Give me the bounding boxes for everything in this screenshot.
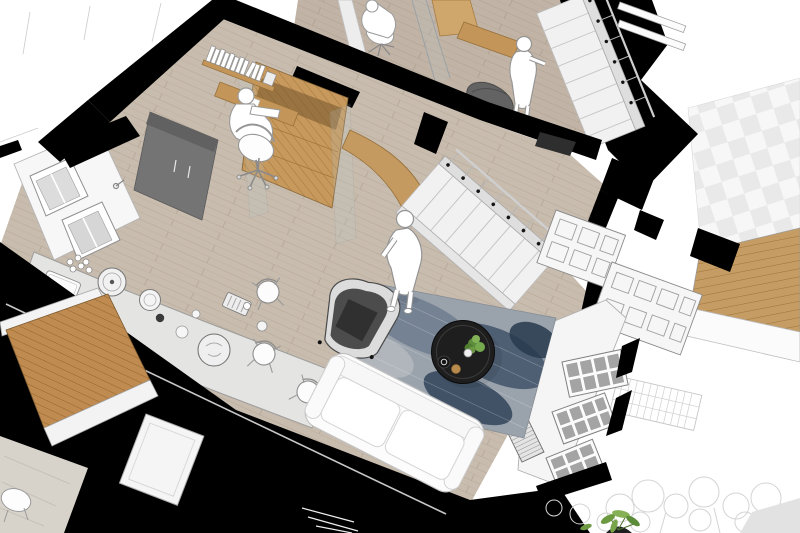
cup	[464, 349, 472, 357]
hall-standing-head	[397, 211, 414, 228]
upper-standing-head	[517, 37, 532, 52]
dark-jar	[156, 314, 164, 322]
bowl	[438, 356, 450, 368]
office-seated-head	[238, 88, 254, 104]
upper-seated-head	[366, 0, 378, 12]
render-canvas	[0, 0, 800, 533]
pastry	[452, 365, 461, 374]
round-tray	[198, 334, 230, 366]
cutaway-render	[0, 0, 800, 533]
